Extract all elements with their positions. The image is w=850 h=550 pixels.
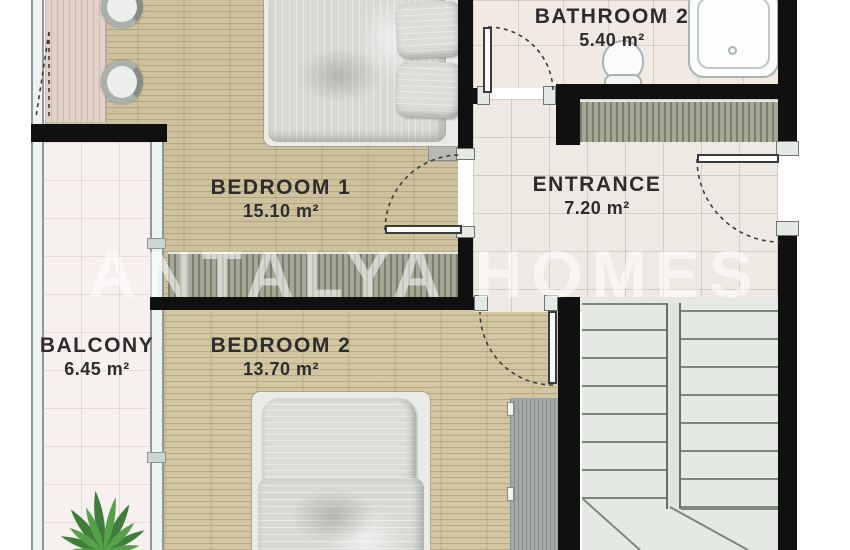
room-area: 7.20 m² xyxy=(533,198,662,219)
room-label-bedroom1: BEDROOM 1 15.10 m² xyxy=(211,176,352,222)
entrance-door xyxy=(697,154,779,163)
bed2-duvet xyxy=(258,478,424,550)
wardrobe-handle xyxy=(507,402,514,416)
bedroom2-door xyxy=(548,311,557,384)
room-label-balcony: BALCONY 6.45 m² xyxy=(40,334,154,380)
bathtub xyxy=(688,0,779,78)
wall-segment xyxy=(31,124,167,142)
room-label-bedroom2: BEDROOM 2 13.70 m² xyxy=(211,334,352,380)
room-area: 15.10 m² xyxy=(211,201,352,222)
stair-flight-right xyxy=(681,297,778,510)
bedroom1-door xyxy=(385,225,462,234)
glazing-sill xyxy=(147,452,166,463)
wall-segment xyxy=(558,297,580,550)
desk xyxy=(45,0,107,122)
bathtub-drain xyxy=(728,46,737,55)
wall-segment xyxy=(556,84,580,145)
room-name: BATHROOM 2 xyxy=(535,5,690,29)
room-name: ENTRANCE xyxy=(533,173,662,197)
door-jamb xyxy=(776,221,799,236)
bathroom2-door xyxy=(483,27,492,93)
wall-segment xyxy=(556,84,780,99)
wall-segment xyxy=(778,0,797,143)
bedroom2-wardrobe xyxy=(510,398,560,550)
door-jamb xyxy=(543,86,556,105)
room-area: 5.40 m² xyxy=(535,30,690,51)
room-name: BEDROOM 2 xyxy=(211,334,352,358)
room-name: BALCONY xyxy=(40,334,154,358)
bed1-pillow xyxy=(395,0,464,59)
staircase xyxy=(582,297,778,550)
bed1-pillow xyxy=(395,61,463,119)
entrance-wardrobe xyxy=(580,100,778,142)
room-area: 13.70 m² xyxy=(211,359,352,380)
stair-flight-left xyxy=(582,303,666,499)
stair-rail xyxy=(666,303,681,509)
wall-segment xyxy=(458,0,473,150)
floor-plan: ANTALYA HOMES BATHROOM 2 5.40 m² BEDROOM… xyxy=(0,0,850,550)
door-jamb xyxy=(776,141,799,156)
desk-chair xyxy=(101,60,143,104)
room-area: 6.45 m² xyxy=(40,359,154,380)
room-label-entrance: ENTRANCE 7.20 m² xyxy=(533,173,662,219)
wardrobe-handle xyxy=(507,487,514,501)
room-name: BEDROOM 1 xyxy=(211,176,352,200)
bedroom1-window xyxy=(31,0,44,124)
watermark: ANTALYA HOMES xyxy=(0,236,850,312)
door-jamb xyxy=(456,148,475,160)
nightstand xyxy=(428,145,458,161)
room-label-bathroom2: BATHROOM 2 5.40 m² xyxy=(535,5,690,51)
bathtub-inner xyxy=(697,0,770,69)
